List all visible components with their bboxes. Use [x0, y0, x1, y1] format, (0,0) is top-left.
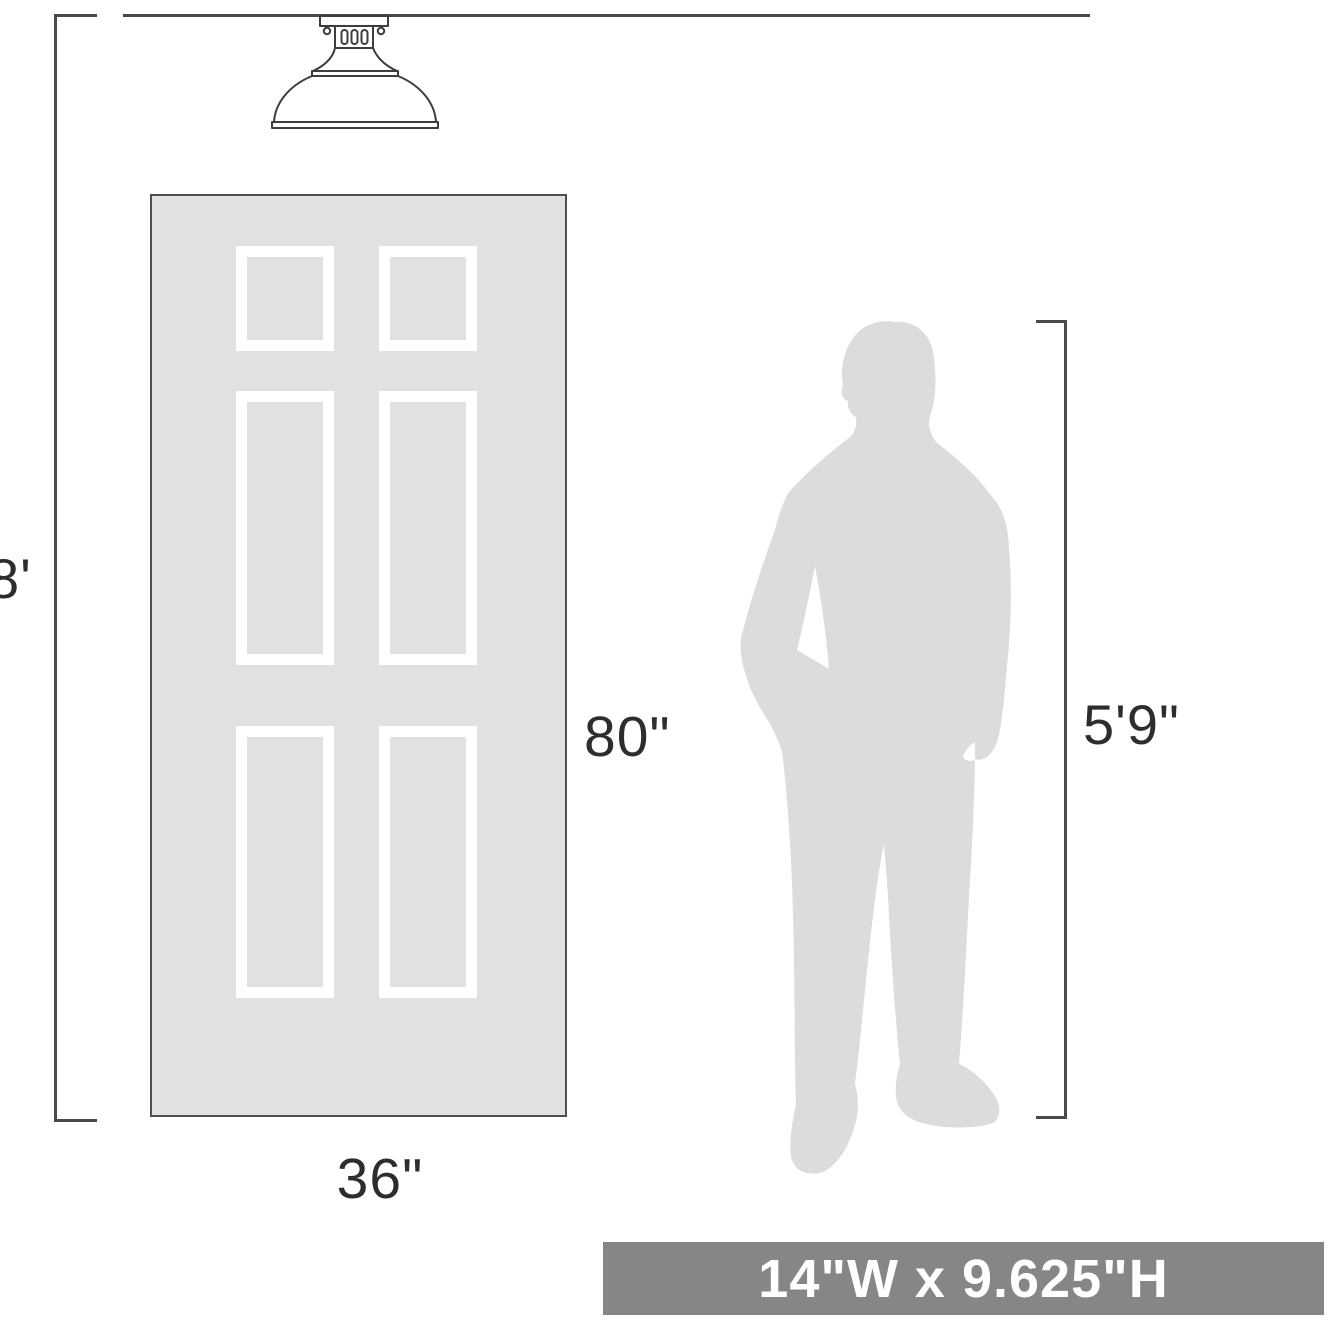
fixture-neck-slot [362, 30, 368, 44]
door-panel [236, 391, 334, 665]
person-height-label: 5'9" [1083, 692, 1180, 757]
person-height-dimension-line [1064, 320, 1067, 1119]
person-silhouette [735, 316, 1015, 1176]
person-silhouette-shape [741, 321, 1011, 1173]
size-comparison-diagram: 8' 80" 36" 5'9" 14 [0, 0, 1328, 1328]
person-height-tick-bottom [1036, 1116, 1067, 1119]
door-height-label: 80" [584, 704, 671, 770]
product-dimensions-banner: 14"W x 9.625"H [603, 1242, 1324, 1315]
fixture-screw-right [378, 28, 384, 34]
fixture-canopy [320, 16, 388, 26]
fixture-dome-shade [274, 76, 436, 122]
ceiling-height-label: 8' [0, 546, 32, 611]
person-height-tick-top [1036, 320, 1067, 323]
door-panel [236, 246, 334, 351]
door-illustration [150, 194, 567, 1117]
door-width-label: 36" [330, 1146, 430, 1212]
fixture-rim [272, 122, 438, 128]
product-dimensions-text: 14"W x 9.625"H [758, 1248, 1168, 1310]
door-panel [379, 391, 477, 665]
fixture-neck-slot [352, 30, 358, 44]
ceiling-height-tick-top [54, 14, 97, 17]
ceiling-height-dimension-line [54, 14, 57, 1122]
ceiling-line [123, 14, 1090, 17]
ceiling-light-illustration [270, 13, 440, 130]
fixture-neck-slot [342, 30, 348, 44]
door-panel [236, 726, 334, 998]
door-panel [379, 726, 477, 998]
fixture-screw-left [324, 28, 330, 34]
fixture-flare [313, 48, 397, 71]
ceiling-height-tick-bottom [54, 1119, 97, 1122]
door-panel [379, 246, 477, 351]
